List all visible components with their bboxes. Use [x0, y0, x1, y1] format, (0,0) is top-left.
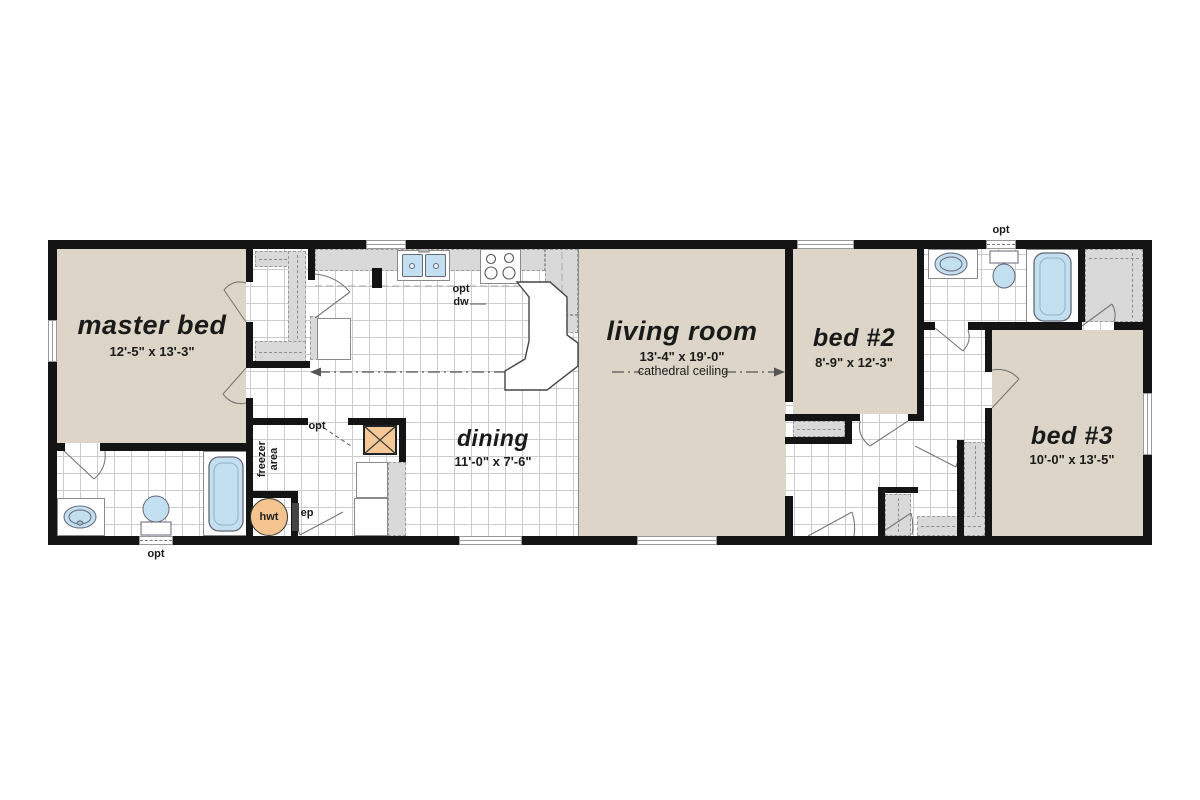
- wall: [957, 440, 964, 536]
- wall-exterior-left: [48, 240, 57, 545]
- wall: [1114, 322, 1143, 330]
- freezer-area-label: freezer area: [244, 436, 292, 482]
- wall: [878, 487, 885, 536]
- window-optional-bath: [139, 536, 173, 545]
- sink-basin-left: [402, 254, 423, 277]
- master-bed-dims: 12'-5" x 13'-3": [109, 344, 194, 359]
- freezer-line1: freezer: [256, 441, 268, 477]
- pantry-cabinet-upper: [356, 462, 388, 498]
- kitchen-counter-wrap: [545, 249, 578, 315]
- living-room-dims: 13'-4" x 19'-0": [639, 349, 724, 364]
- opt-dw-line2: dw: [452, 296, 469, 309]
- bed2-dims: 8'-9" x 12'-3": [815, 355, 893, 370]
- wall: [968, 322, 1082, 330]
- stove: [480, 249, 521, 284]
- hall-closet-left: [885, 494, 911, 536]
- wall: [785, 437, 852, 444]
- wall: [57, 443, 65, 451]
- bed3-wardrobe: [1085, 249, 1143, 322]
- sink-basin-right: [425, 254, 446, 277]
- dining-dims: 11'-0" x 7'-6": [454, 454, 531, 469]
- wall: [246, 322, 253, 368]
- wall: [399, 418, 406, 462]
- floor-plan-canvas: master bed 12'-5" x 13'-3" dining 11'-0"…: [0, 0, 1200, 800]
- master-tub-surround: [203, 451, 249, 536]
- wall: [785, 249, 793, 402]
- wall: [985, 330, 992, 372]
- hot-water-tank: hwt: [250, 498, 288, 536]
- window-optional-top: [986, 240, 1016, 249]
- electrical-panel: [292, 503, 299, 531]
- living-room-floor: [578, 249, 786, 536]
- freezer-line2: area: [268, 441, 280, 477]
- master-closet-shelf-bottom: [255, 341, 306, 363]
- opt-dw-line1: opt: [452, 283, 469, 296]
- bed2-label: bed #2: [813, 324, 895, 353]
- master-bed-label: master bed: [77, 310, 226, 341]
- hall-bath-vanity: [928, 249, 978, 279]
- living-room-label: living room: [606, 316, 757, 347]
- wall: [917, 322, 935, 330]
- wall: [1078, 249, 1085, 322]
- window-kitchen: [366, 240, 406, 249]
- opt-window-top-label: opt: [992, 224, 1009, 237]
- master-bath-vanity: [57, 498, 105, 536]
- washer: [363, 425, 397, 455]
- wall: [917, 249, 924, 421]
- wall: [253, 361, 310, 368]
- hall-closet-bottom: [917, 516, 985, 536]
- electrical-panel-label: ep: [301, 507, 314, 520]
- pantry-side-panel: [388, 462, 406, 536]
- kitchen-counter-stub: [556, 315, 578, 333]
- bed3-label: bed #3: [1031, 422, 1113, 451]
- refrigerator: [317, 318, 351, 360]
- hall-tub-surround: [1026, 249, 1079, 328]
- opt-door-label: opt: [308, 420, 325, 433]
- bed2-closet-shelf: [793, 421, 845, 437]
- wall: [100, 443, 253, 451]
- opt-window-bottom-label: opt: [147, 548, 164, 561]
- window-living: [637, 536, 717, 545]
- window-bed2: [797, 240, 854, 249]
- wall: [246, 249, 253, 282]
- wall: [878, 487, 918, 493]
- bed3-dims: 10'-0" x 13'-5": [1029, 452, 1114, 467]
- wall: [308, 249, 315, 280]
- dining-label: dining: [457, 425, 529, 452]
- pantry-cabinet-lower: [354, 498, 388, 536]
- hwt-label: hwt: [260, 511, 279, 523]
- opt-dishwasher-label: opt dw: [452, 283, 469, 308]
- window-dining: [459, 536, 522, 545]
- wall-exterior-bottom: [48, 536, 1152, 545]
- wall: [985, 408, 992, 536]
- window-bed3-right: [1143, 393, 1152, 455]
- wall: [246, 418, 308, 425]
- cathedral-ceiling-label: cathedral ceiling: [638, 364, 728, 378]
- wall: [348, 418, 406, 425]
- window-master-left: [48, 320, 57, 362]
- wall: [845, 414, 852, 444]
- wall: [372, 268, 382, 288]
- wall: [785, 496, 793, 536]
